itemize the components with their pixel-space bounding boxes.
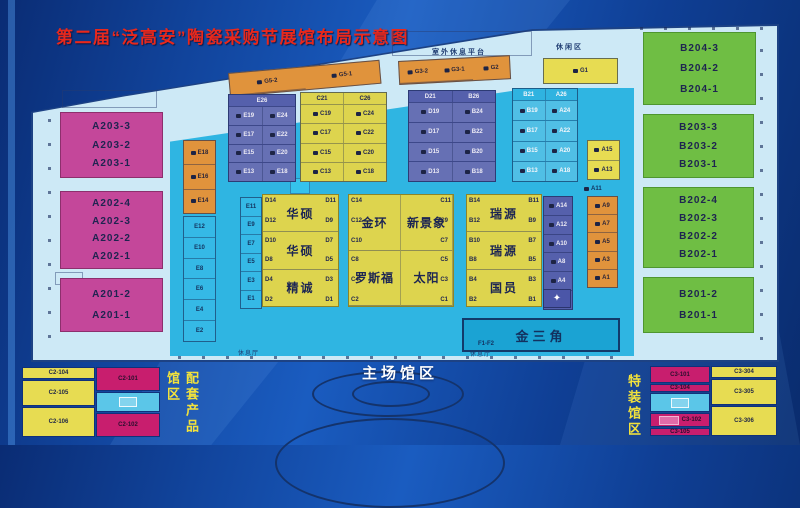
booth-code: B10 bbox=[469, 238, 480, 244]
booth-label: A203-2 bbox=[92, 140, 131, 151]
booth-label: A202-4 bbox=[92, 198, 131, 209]
hall-a202-units: A202-4A202-3A202-2A202-1 bbox=[61, 192, 162, 268]
unit-label: A202-3 bbox=[61, 216, 162, 227]
booth-label: G2 bbox=[484, 65, 499, 72]
booth-label: C15 bbox=[301, 144, 344, 162]
booth-label: G3-1 bbox=[444, 66, 465, 73]
booth-label: E11 bbox=[246, 204, 256, 210]
unit-label: B204-3 bbox=[644, 43, 755, 54]
booth-cell: E11 bbox=[241, 198, 261, 217]
booth-cell: E14 bbox=[184, 190, 215, 213]
booth-row: E15E20 bbox=[229, 145, 295, 164]
unit-label: B203-1 bbox=[644, 159, 753, 170]
booth-label: G3-2 bbox=[408, 68, 429, 75]
booth-label: C26 bbox=[344, 93, 386, 104]
booth-label: B204-1 bbox=[680, 84, 719, 95]
booth-code: D2 bbox=[265, 297, 276, 303]
booth-label: A202-2 bbox=[92, 233, 131, 244]
booth-label: A14 bbox=[549, 203, 567, 209]
booth-label: E12 bbox=[194, 224, 205, 230]
booth-cell: G3-1 bbox=[436, 58, 474, 82]
booth-label: C2 bbox=[351, 297, 359, 303]
booth-code: C3-304 bbox=[712, 367, 776, 377]
f-zone-label: F1-F2 bbox=[478, 341, 494, 347]
legend-left-cell bbox=[96, 392, 160, 412]
booth-row: C15C20 bbox=[301, 144, 386, 163]
booth-label: B202-3 bbox=[679, 213, 718, 224]
booth-cell: A12 bbox=[544, 216, 572, 235]
booth-cell: E1 bbox=[241, 291, 261, 309]
booth-label: B204-2 bbox=[680, 63, 719, 74]
booth-label: B26 bbox=[453, 91, 496, 102]
booth-label: A4 bbox=[551, 278, 566, 284]
booth-code: D14 bbox=[265, 198, 276, 204]
booth-label: C17 bbox=[301, 124, 344, 142]
booth-code: B5 bbox=[528, 257, 539, 263]
booth-label: C4 bbox=[351, 277, 359, 283]
booth-label: B5 bbox=[528, 257, 536, 263]
booth-label: B203-3 bbox=[679, 122, 718, 133]
booth-label: C20 bbox=[344, 144, 386, 162]
right-hall-title: 特装馆区 bbox=[624, 374, 643, 444]
booth-row: D19B24 bbox=[409, 103, 495, 123]
booth-label: A8 bbox=[551, 259, 566, 265]
booth-label: A13 bbox=[594, 167, 612, 173]
booth-label: D8 bbox=[265, 257, 273, 263]
booth-row: B19A24 bbox=[513, 101, 577, 121]
booth-label: B22 bbox=[453, 123, 496, 142]
booth-codes-d-left: D14D12D10D8D4D2 bbox=[265, 198, 276, 303]
booth-row: C21C26 bbox=[301, 93, 386, 105]
legend-left-cell: C2-101 bbox=[96, 367, 160, 391]
booth-cell: E18 bbox=[184, 141, 215, 165]
booth-row: E19E24 bbox=[229, 107, 295, 126]
company-block-c: 金环新景象罗斯福太阳 C14C12C10C8C4C2 C11C9C7C5C3C1 bbox=[348, 194, 454, 307]
booth-code: C2-101 bbox=[97, 368, 159, 390]
booth-code: C2-104 bbox=[23, 368, 94, 378]
booth-label: B18 bbox=[453, 162, 496, 181]
booth-label: A12 bbox=[549, 222, 567, 228]
hall-b203: B203-3B203-2B203-1 bbox=[643, 114, 754, 178]
stair-sketch bbox=[62, 90, 157, 108]
booth-label: C21 bbox=[301, 93, 344, 104]
hall-a203: A203-3A203-2A203-1 bbox=[60, 112, 163, 178]
booth-cell: A15 bbox=[588, 141, 619, 161]
booth-label: B204-3 bbox=[680, 43, 719, 54]
hall-b203-units: B203-3B203-2B203-1 bbox=[644, 115, 753, 177]
booth-label: A203-3 bbox=[92, 121, 131, 132]
booth-code: C2 bbox=[351, 297, 362, 303]
booth-row: C17C22 bbox=[301, 124, 386, 143]
hall-a202: A202-4A202-3A202-2A202-1 bbox=[60, 191, 163, 269]
booth-label: B21 bbox=[513, 89, 546, 100]
booth-code: C10 bbox=[351, 238, 362, 244]
booth-label: B19 bbox=[513, 101, 546, 120]
booth-label: E22 bbox=[263, 126, 296, 144]
booth-cell: E5 bbox=[241, 254, 261, 273]
booth-grid-e: E26E19E24E17E22E15E20E13E18 bbox=[228, 94, 296, 182]
unit-label: A201-1 bbox=[61, 310, 162, 321]
booth-label: D17 bbox=[409, 123, 453, 142]
booth-cell: E9 bbox=[241, 217, 261, 236]
booth-label: A26 bbox=[546, 89, 578, 100]
booth-label: D4 bbox=[265, 277, 273, 283]
booth-row: C19C24 bbox=[301, 105, 386, 124]
booth-code: C9 bbox=[440, 218, 451, 224]
booth-label: A7 bbox=[595, 221, 610, 227]
booth-row: D15B20 bbox=[409, 143, 495, 163]
booth-label: 精诚 bbox=[286, 279, 314, 296]
booth-code: C3-306 bbox=[712, 407, 776, 435]
background-edge-strip bbox=[8, 0, 15, 445]
booth-label: C3 bbox=[440, 277, 448, 283]
hall-a201-units: A201-2A201-1 bbox=[61, 279, 162, 331]
booth-label: E15 bbox=[229, 145, 263, 163]
booth-label: E1 bbox=[247, 296, 254, 302]
booth-code: D9 bbox=[325, 218, 336, 224]
booth-label: 金环 bbox=[361, 214, 387, 231]
booth-code: C2-102 bbox=[97, 414, 159, 436]
booth-label: D5 bbox=[325, 257, 333, 263]
hall-b201-units: B201-2B201-1 bbox=[644, 278, 753, 332]
booth-cell: A7 bbox=[588, 215, 617, 233]
booth-code: C2-106 bbox=[23, 408, 94, 436]
golden-triangle-label: 金三角 bbox=[515, 326, 566, 345]
unit-label: A203-3 bbox=[61, 121, 162, 132]
booth-codes-d-right: D11D9D7D5D3D1 bbox=[325, 198, 336, 303]
booth-label: A15 bbox=[594, 147, 612, 153]
booth-row: E17E22 bbox=[229, 126, 295, 145]
booth-label: C24 bbox=[344, 105, 386, 123]
unit-label: A202-4 bbox=[61, 198, 162, 209]
booth-cell: E8 bbox=[184, 259, 215, 280]
booth-code: B7 bbox=[528, 238, 539, 244]
booth-label: D19 bbox=[409, 103, 453, 122]
booth-label: B201-2 bbox=[679, 289, 718, 300]
booth-label: B3 bbox=[528, 277, 536, 283]
booth-code: C3-305 bbox=[712, 380, 776, 404]
booth-code: C1 bbox=[440, 297, 451, 303]
booth-label: C12 bbox=[351, 218, 362, 224]
booth-label: A20 bbox=[546, 142, 578, 161]
booth-code: D10 bbox=[265, 238, 276, 244]
unit-label: A202-1 bbox=[61, 251, 162, 262]
booth-code: D5 bbox=[325, 257, 336, 263]
booth-cell: A9 bbox=[588, 197, 617, 215]
booth-label: E10 bbox=[194, 245, 205, 251]
platform-label: 室外休息平台 bbox=[432, 47, 486, 57]
booth-label: E14 bbox=[191, 198, 209, 204]
legend-left-cell: C2-106 bbox=[22, 407, 95, 437]
booth-cell: A5 bbox=[588, 233, 617, 251]
legend-left-cell: C2-104 bbox=[22, 367, 95, 379]
booth-label: A202-1 bbox=[92, 251, 131, 262]
booth-label: C5 bbox=[440, 257, 448, 263]
booth-cell: E2 bbox=[184, 321, 215, 341]
booth-label: C19 bbox=[301, 105, 344, 123]
booth-cell: G1 bbox=[544, 59, 617, 83]
booth-label: E13 bbox=[229, 163, 263, 181]
booth-label: E24 bbox=[263, 107, 296, 125]
legend-left-cell: C2-102 bbox=[96, 413, 160, 437]
plaza-arc bbox=[275, 418, 505, 508]
booth-label: B9 bbox=[528, 218, 536, 224]
booth-cell: G3-2 bbox=[399, 60, 437, 84]
booth-label: B203-1 bbox=[679, 159, 718, 170]
hall-b204: B204-3B204-2B204-1 bbox=[643, 32, 756, 105]
booth-cell: E4 bbox=[184, 300, 215, 321]
booth-label: E18 bbox=[263, 163, 296, 181]
booth-cell: A8 bbox=[544, 253, 572, 272]
booth-label: 华硕 bbox=[286, 242, 314, 259]
booth-label: C13 bbox=[301, 163, 344, 181]
hall-b204-units: B204-3B204-2B204-1 bbox=[644, 33, 755, 104]
booth-label: D9 bbox=[325, 218, 333, 224]
rest-room-label: 休息厅 bbox=[238, 348, 259, 357]
company-names-c: 金环新景象罗斯福太阳 bbox=[349, 195, 453, 306]
booth-cell: E3 bbox=[241, 272, 261, 291]
booth-cell: G2 bbox=[472, 56, 510, 80]
booth-label: E2 bbox=[196, 328, 203, 334]
booth-code: B9 bbox=[528, 218, 539, 224]
booth-row: B13A18 bbox=[513, 162, 577, 181]
leisure-label: 休闲区 bbox=[556, 42, 583, 52]
booth-col-e-cyan: E12E10E8E6E4E2 bbox=[183, 216, 216, 342]
legend-right-cell: C3-102 bbox=[650, 413, 710, 427]
booth-label: D11 bbox=[325, 198, 336, 204]
booth-col-e-odd: E11E9E7E5E3E1 bbox=[240, 197, 262, 309]
booth-label: B202-4 bbox=[679, 195, 718, 206]
dimension-ticks bbox=[760, 40, 763, 340]
booth-label: G5-2 bbox=[257, 77, 278, 85]
booth-label: B24 bbox=[453, 103, 496, 122]
unit-label: A203-2 bbox=[61, 140, 162, 151]
plaza-ellipse-inner bbox=[352, 381, 430, 407]
legend-right-cell: C3-305 bbox=[711, 379, 777, 405]
booth-code: B12 bbox=[469, 218, 480, 224]
booth-label: 瑞源 bbox=[490, 242, 518, 259]
booth-label: B202-2 bbox=[679, 231, 718, 242]
booth-label: B201-1 bbox=[679, 310, 718, 321]
booth-label: A3 bbox=[595, 257, 610, 263]
booth-label: B1 bbox=[528, 297, 536, 303]
booth-label: D21 bbox=[409, 91, 453, 102]
unit-label: B201-1 bbox=[644, 310, 753, 321]
unit-label: A203-1 bbox=[61, 158, 162, 169]
hall-b201: B201-2B201-1 bbox=[643, 277, 754, 333]
booth-col-a-orange: A9A7A5A3A1 bbox=[587, 196, 618, 288]
booth-cell: A13 bbox=[588, 161, 619, 180]
booth-label: B14 bbox=[469, 198, 480, 204]
unit-label: A201-2 bbox=[61, 289, 162, 300]
booth-label: A18 bbox=[546, 162, 578, 181]
booth-cell: E16 bbox=[184, 165, 215, 189]
booth-code: C5 bbox=[440, 257, 451, 263]
booth-code: C8 bbox=[351, 257, 362, 263]
booth-label: D1 bbox=[325, 297, 333, 303]
booth-row: D13B18 bbox=[409, 162, 495, 181]
hall-b202-units: B202-4B202-3B202-2B202-1 bbox=[644, 188, 753, 267]
unit-label: B202-3 bbox=[644, 213, 753, 224]
booth-code: C2-105 bbox=[23, 381, 94, 405]
booth-label: B203-2 bbox=[679, 141, 718, 152]
booth-row: B17A22 bbox=[513, 121, 577, 141]
legend-left-cell: C2-105 bbox=[22, 380, 95, 406]
booth-label: A201-2 bbox=[92, 289, 131, 300]
unit-label: B203-3 bbox=[644, 122, 753, 133]
booth-label: B2 bbox=[469, 297, 477, 303]
legend-right-cell: C3-101 bbox=[650, 366, 710, 383]
booth-label: B20 bbox=[453, 143, 496, 162]
booth-code: C3-104 bbox=[651, 385, 709, 391]
booth-label: C1 bbox=[440, 297, 448, 303]
booth-code: B14 bbox=[469, 198, 480, 204]
booth-label: D2 bbox=[265, 297, 273, 303]
booth-label: 太阳 bbox=[413, 269, 439, 286]
booth-codes-b-right: B11B9B7B5B3B1 bbox=[528, 198, 539, 303]
booth-code: B2 bbox=[469, 297, 480, 303]
company-block-d: 华硕华硕精诚 D14D12D10D8D4D2 D11D9D7D5D3D1 bbox=[262, 194, 339, 307]
booth-cell: A1 bbox=[588, 270, 617, 287]
legend-box-icon bbox=[119, 397, 137, 407]
booth-label: C7 bbox=[440, 238, 448, 244]
booth-code: C3-105 bbox=[651, 429, 709, 435]
booth-label: C9 bbox=[440, 218, 448, 224]
booth-codes-c-right: C11C9C7C5C3C1 bbox=[440, 198, 451, 303]
booth-label: D10 bbox=[265, 238, 276, 244]
booth-label: B17 bbox=[513, 121, 546, 140]
booth-label: A10 bbox=[549, 241, 567, 247]
booth-grid-d: D21B26D19B24D17B22D15B20D13B18 bbox=[408, 90, 496, 182]
booth-label: B7 bbox=[528, 238, 536, 244]
booth-code: D11 bbox=[325, 198, 336, 204]
booth-label: B8 bbox=[469, 257, 477, 263]
booth-row: D21B26 bbox=[409, 91, 495, 103]
booth-label: D15 bbox=[409, 143, 453, 162]
poster-background: { "title": "第二届“泛高安”陶瓷采购节展馆布局示意图", "colo… bbox=[0, 0, 800, 445]
booth-code: B1 bbox=[528, 297, 539, 303]
booth-row: B21A26 bbox=[513, 89, 577, 101]
booth-label: A11 bbox=[591, 186, 602, 192]
booth-label: C10 bbox=[351, 238, 362, 244]
left-hall-title: 配套产品馆区 bbox=[163, 371, 201, 443]
booth-label: A22 bbox=[546, 121, 578, 140]
booth-label: E3 bbox=[247, 278, 254, 284]
booth-label: E18 bbox=[191, 150, 209, 156]
booth-code: D7 bbox=[325, 238, 336, 244]
booth-code: C3-102 bbox=[682, 417, 702, 423]
booth-label: A203-1 bbox=[92, 158, 131, 169]
unit-label: B204-2 bbox=[644, 63, 755, 74]
booth-label: G1 bbox=[573, 68, 588, 74]
booth-label: E17 bbox=[229, 126, 263, 144]
booth-label: E26 bbox=[229, 95, 295, 106]
booth-col-e-orange: E18E16E14 bbox=[183, 140, 216, 214]
legend-box-icon bbox=[659, 416, 679, 425]
booth-code: C4 bbox=[351, 277, 362, 283]
unit-label: B204-1 bbox=[644, 84, 755, 95]
booth-code: D1 bbox=[325, 297, 336, 303]
booth-code: D3 bbox=[325, 277, 336, 283]
unit-label: B202-1 bbox=[644, 249, 753, 260]
booth-code: B3 bbox=[528, 277, 539, 283]
booth-code: D4 bbox=[265, 277, 276, 283]
legend-box-icon bbox=[671, 398, 689, 408]
dimension-ticks bbox=[640, 27, 770, 30]
booth-label: D7 bbox=[325, 238, 333, 244]
booth-codes-b-left: B14B12B10B8B4B2 bbox=[469, 198, 480, 303]
golden-triangle-block: 金三角 F1-F2 bbox=[462, 318, 620, 352]
booth-code: B11 bbox=[528, 198, 539, 204]
booth-label: 国员 bbox=[490, 279, 518, 296]
booth-a11: A11 bbox=[584, 183, 622, 195]
booth-row: E26 bbox=[229, 95, 295, 107]
booth-code: C12 bbox=[351, 218, 362, 224]
booth-label: A24 bbox=[546, 101, 578, 120]
hall-a203-units: A203-3A203-2A203-1 bbox=[61, 113, 162, 177]
legend-right-cell: C3-304 bbox=[711, 366, 777, 378]
booth-code: C3-101 bbox=[651, 367, 709, 382]
legend-right-cell: C3-306 bbox=[711, 406, 777, 436]
booth-label: A201-1 bbox=[92, 310, 131, 321]
booth-label: E5 bbox=[247, 259, 254, 265]
booth-cell: E12 bbox=[184, 217, 215, 238]
page-title: 第二届“泛高安”陶瓷采购节展馆布局示意图 bbox=[56, 23, 409, 48]
booth-label: C14 bbox=[351, 198, 362, 204]
hall-a201: A201-2A201-1 bbox=[60, 278, 163, 332]
company-block-b: 瑞源瑞源国员 B14B12B10B8B4B2 B11B9B7B5B3B1 bbox=[466, 194, 542, 307]
booth-cell: E6 bbox=[184, 279, 215, 300]
main-hall-label: 主场馆区 bbox=[330, 362, 470, 383]
booth-row: C13C18 bbox=[301, 163, 386, 181]
booth-label: E6 bbox=[196, 286, 203, 292]
booth-cell: E7 bbox=[241, 235, 261, 254]
booth-label: A5 bbox=[595, 239, 610, 245]
legend-right-cell: C3-105 bbox=[650, 428, 710, 436]
booth-codes-c-left: C14C12C10C8C4C2 bbox=[351, 198, 362, 303]
booth-col-a-yellow: A15A13 bbox=[587, 140, 620, 180]
booth-label: E19 bbox=[229, 107, 263, 125]
logo-icon: ✦ bbox=[553, 293, 561, 304]
booth-label: 瑞源 bbox=[490, 205, 518, 222]
booth-code: C3 bbox=[440, 277, 451, 283]
booth-label: B10 bbox=[469, 238, 480, 244]
booth-grid-b: B21A26B19A24B17A22B15A20B13A18 bbox=[512, 88, 578, 182]
booth-label: C11 bbox=[440, 198, 451, 204]
booth-label: C22 bbox=[344, 124, 386, 142]
booth-label: B15 bbox=[513, 142, 546, 161]
booth-label: D13 bbox=[409, 162, 453, 181]
booth-label: A9 bbox=[595, 203, 610, 209]
booth-code: C11 bbox=[440, 198, 451, 204]
booth-label: E4 bbox=[196, 307, 203, 313]
hall-b202: B202-4B202-3B202-2B202-1 bbox=[643, 187, 754, 268]
booth-label: D3 bbox=[325, 277, 333, 283]
booth-label: C8 bbox=[351, 257, 359, 263]
booth-label: A1 bbox=[595, 275, 610, 281]
booth-label: B202-1 bbox=[679, 249, 718, 260]
booth-cell: A3 bbox=[588, 252, 617, 270]
booth-label: B13 bbox=[513, 162, 546, 181]
booth-label: E8 bbox=[196, 266, 203, 272]
booth-cell: A14 bbox=[544, 197, 572, 216]
booth-label: D12 bbox=[265, 218, 276, 224]
booth-label: E16 bbox=[191, 174, 209, 180]
unit-label: A202-2 bbox=[61, 233, 162, 244]
booth-label: B4 bbox=[469, 277, 477, 283]
legend-right-cell: C3-104 bbox=[650, 384, 710, 392]
booth-label: E9 bbox=[247, 222, 254, 228]
